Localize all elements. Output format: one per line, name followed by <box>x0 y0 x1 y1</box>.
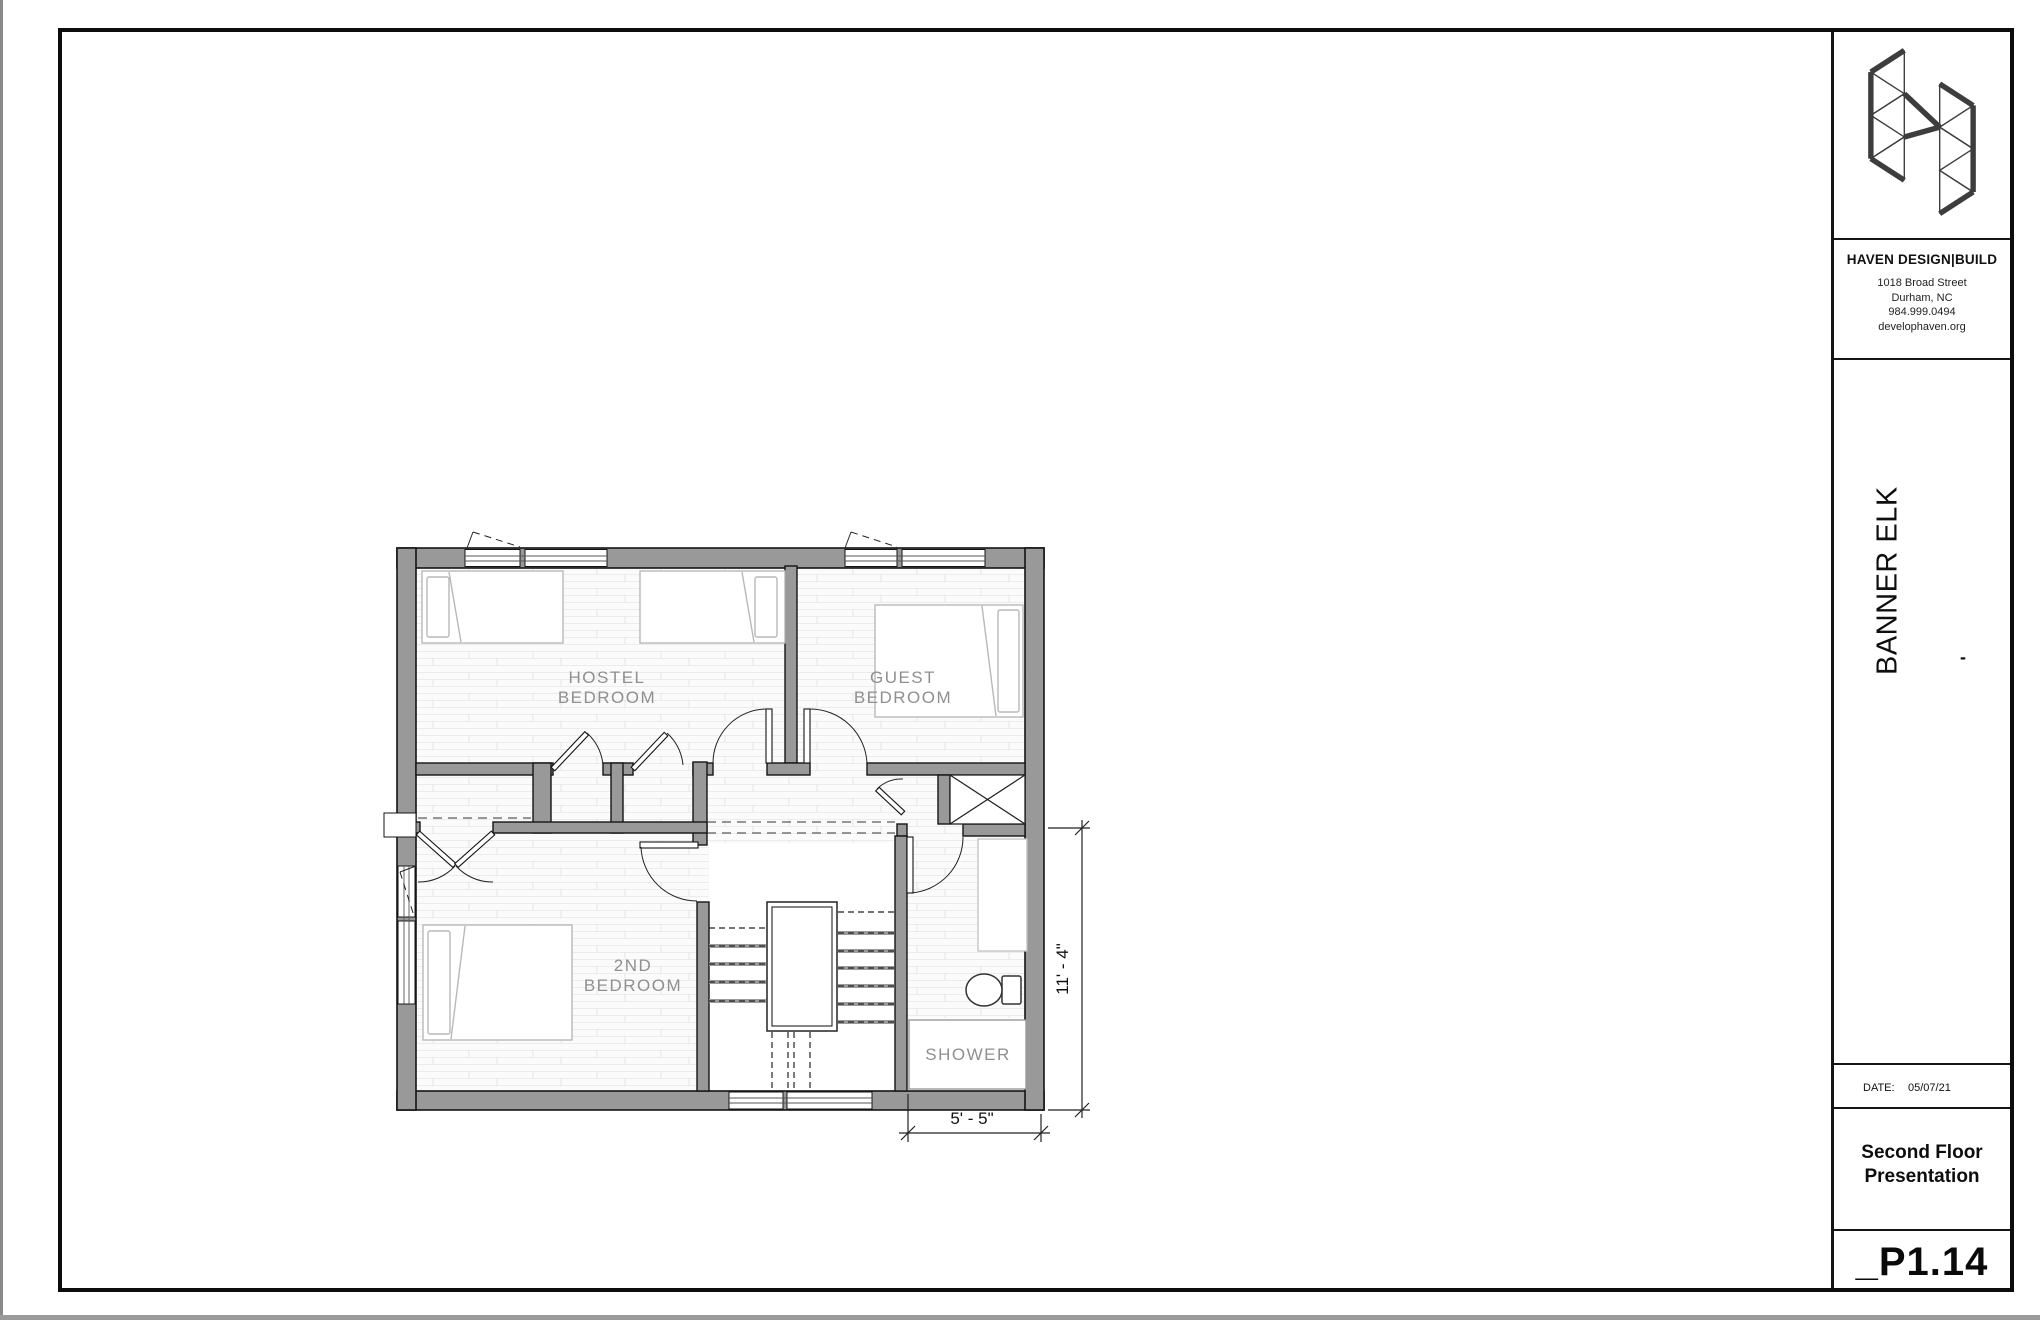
date-label: DATE: <box>1863 1082 1895 1094</box>
room-label-shower: SHOWER <box>925 1045 1011 1064</box>
project-box: BANNER ELK - <box>1834 358 2010 1063</box>
haven-logo-icon <box>1863 46 1981 224</box>
date-value: 05/07/21 <box>1908 1082 1951 1094</box>
room-label-guest-line1: GUEST <box>870 668 936 687</box>
logo-box <box>1834 32 2010 238</box>
room-label-second-line1: 2ND <box>614 956 653 975</box>
room-label-hostel-line1: HOSTEL <box>568 668 645 687</box>
floor-plan-area: HOSTEL BEDROOM GUEST BEDROOM 2ND BEDROOM… <box>370 510 1090 1170</box>
firm-website: develophaven.org <box>1834 320 2010 335</box>
project-name: BANNER ELK <box>1872 615 1905 675</box>
sheet-title-box: Second Floor Presentation <box>1834 1107 2010 1229</box>
bed-hostel-1 <box>422 571 563 643</box>
dimension-vertical-label: 11' - 4" <box>1053 943 1072 995</box>
sheet-number-box: _P1.14 <box>1834 1229 2010 1288</box>
sheet-title-line2: Presentation <box>1834 1165 2010 1189</box>
floor-plan: HOSTEL BEDROOM GUEST BEDROOM 2ND BEDROOM… <box>370 510 1090 1170</box>
stairwell-opening <box>767 902 837 1031</box>
firm-info-box: HAVEN DESIGN|BUILD 1018 Broad Street Dur… <box>1834 238 2010 358</box>
screen-edge-left <box>0 0 3 1320</box>
title-block: HAVEN DESIGN|BUILD 1018 Broad Street Dur… <box>1831 32 2010 1288</box>
screen-edge-bottom <box>0 1315 2040 1320</box>
sheet-number: _P1.14 <box>1834 1231 2010 1293</box>
room-label-guest-line2: BEDROOM <box>854 688 952 707</box>
room-label-hostel-line2: BEDROOM <box>558 688 656 707</box>
toilet-fixture <box>966 974 1021 1006</box>
vanity-counter <box>978 839 1027 951</box>
wall-chase <box>384 813 416 837</box>
bed-hostel-2 <box>640 571 785 643</box>
bed-second <box>423 925 572 1040</box>
linen-closet-x <box>950 775 1025 824</box>
firm-address-line1: 1018 Broad Street <box>1834 276 2010 291</box>
dimension-horizontal-label: 5' - 5" <box>950 1109 993 1128</box>
firm-name: HAVEN DESIGN|BUILD <box>1834 252 2010 267</box>
project-dash: - <box>1960 647 1966 668</box>
sheet-title-line1: Second Floor <box>1834 1141 2010 1165</box>
date-row: DATE: 05/07/21 <box>1834 1063 2010 1107</box>
firm-phone: 984.999.0494 <box>1834 305 2010 320</box>
firm-address-line2: Durham, NC <box>1834 291 2010 306</box>
room-label-second-line2: BEDROOM <box>584 976 682 995</box>
